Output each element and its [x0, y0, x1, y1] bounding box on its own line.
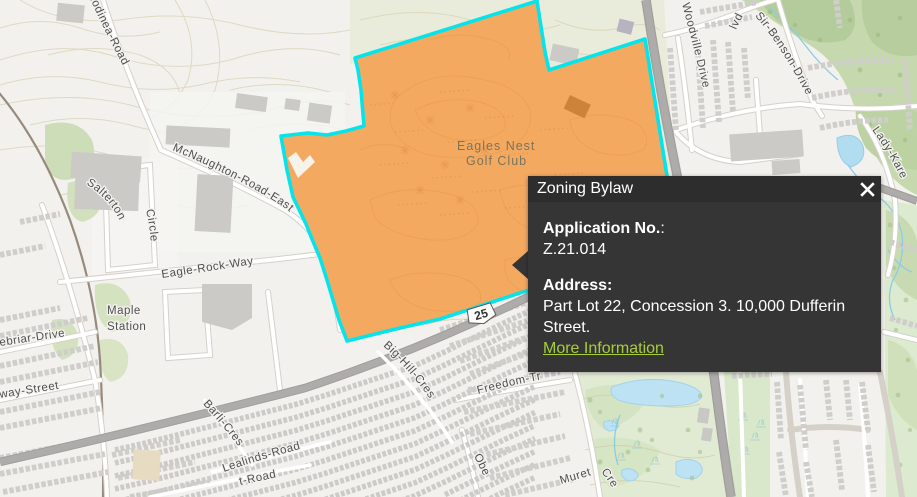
svg-text:Station: Station [107, 321, 146, 333]
svg-text:Maple: Maple [107, 305, 141, 317]
svg-text:Eagles Nest: Eagles Nest [457, 139, 535, 153]
svg-text:Golf Club: Golf Club [466, 154, 527, 168]
